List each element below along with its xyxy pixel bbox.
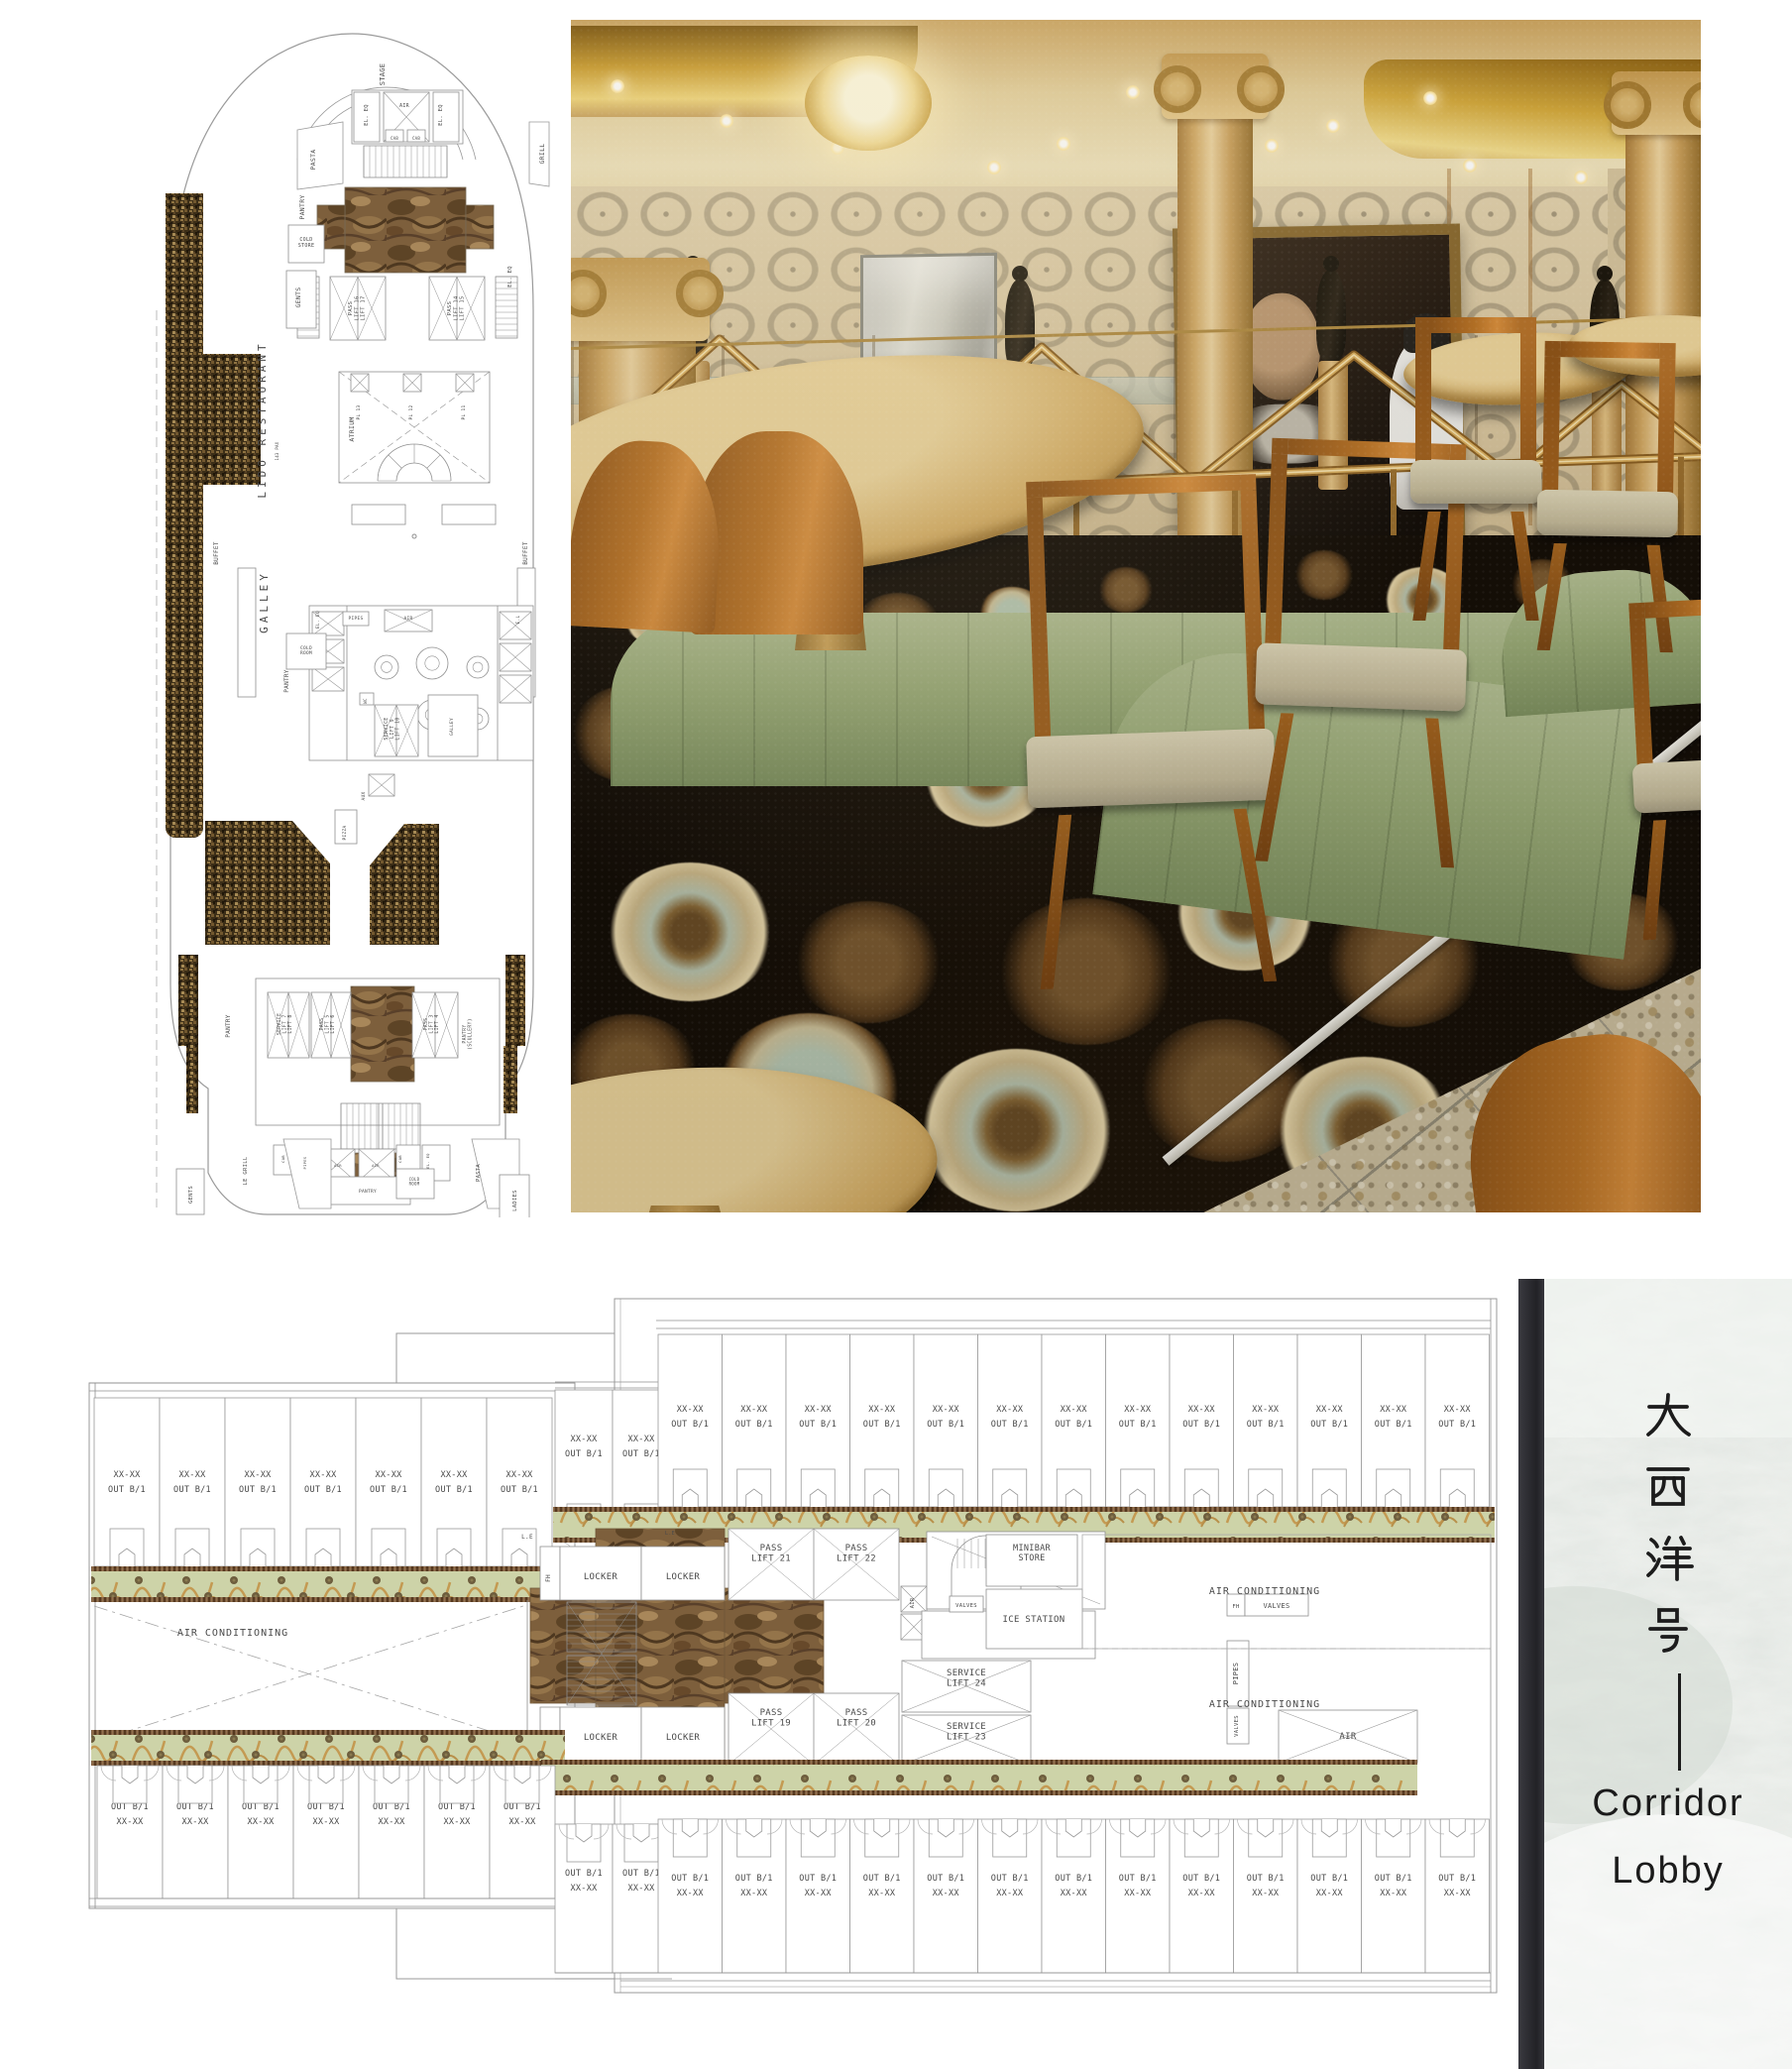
svg-text:XX-XX: XX-XX	[1061, 1889, 1088, 1898]
chair-seat-cushion	[1631, 756, 1701, 813]
svg-text:XX-XX: XX-XX	[508, 1817, 536, 1827]
corridor-plan-drawing: XX-XXOUT B/1XX-XXOUT B/1XX-XXOUT B/1XX-X…	[89, 1299, 1497, 1993]
wooden-chair	[1456, 1022, 1701, 1212]
svg-text:XX-XX: XX-XX	[933, 1889, 960, 1898]
svg-text:OUT B/1: OUT B/1	[370, 1485, 407, 1495]
svg-text:VALVES: VALVES	[1234, 1715, 1240, 1737]
svg-text:XX-XX: XX-XX	[1380, 1889, 1407, 1898]
svg-text:PIZZA: PIZZA	[342, 825, 348, 840]
svg-text:EL. EQ: EL. EQ	[364, 104, 370, 126]
svg-text:GENTS: GENTS	[294, 287, 302, 307]
chair-leg	[1643, 820, 1667, 940]
svg-text:LIDO RESTAURANT: LIDO RESTAURANT	[256, 340, 269, 498]
svg-text:GALLEY: GALLEY	[449, 718, 455, 736]
svg-text:OUT B/1: OUT B/1	[1375, 1874, 1412, 1884]
svg-text:CAB: CAB	[412, 136, 420, 141]
svg-text:OUT B/1: OUT B/1	[435, 1485, 473, 1495]
svg-text:XX-XX: XX-XX	[677, 1889, 705, 1898]
svg-text:XX-XX: XX-XX	[181, 1817, 209, 1827]
svg-text:XX-XX: XX-XX	[375, 1470, 402, 1480]
svg-text:OUT B/1: OUT B/1	[307, 1802, 345, 1812]
svg-text:XX-XX: XX-XX	[1316, 1889, 1344, 1898]
chair-leg	[1412, 512, 1440, 621]
svg-text:FH: FH	[545, 1574, 552, 1582]
svg-text:XX-XX: XX-XX	[505, 1470, 533, 1480]
divider-bar	[1518, 1279, 1544, 2069]
svg-text:EL. EQ: EL. EQ	[507, 266, 513, 287]
svg-text:XX-XX: XX-XX	[627, 1435, 655, 1444]
svg-text:OUT B/1: OUT B/1	[735, 1874, 773, 1884]
svg-text:CAB: CAB	[280, 1155, 285, 1163]
svg-text:PASTA: PASTA	[309, 149, 317, 170]
svg-text:OUT B/1: OUT B/1	[111, 1802, 149, 1812]
svg-text:OUT B/1: OUT B/1	[1438, 1420, 1476, 1430]
svg-text:E.L: E.L	[515, 615, 521, 624]
chair-back	[1628, 597, 1701, 772]
svg-text:OUT B/1: OUT B/1	[927, 1874, 964, 1884]
svg-text:OUT B/1: OUT B/1	[1247, 1874, 1285, 1884]
svg-text:143 PAX: 143 PAX	[275, 441, 280, 460]
svg-text:AIR: AIR	[910, 1597, 916, 1608]
svg-text:OUT B/1: OUT B/1	[799, 1420, 837, 1430]
svg-text:CAB: CAB	[397, 1155, 402, 1163]
svg-text:PANTRY: PANTRY	[298, 194, 306, 219]
svg-text:OUT B/1: OUT B/1	[1310, 1874, 1348, 1884]
svg-text:XX-XX: XX-XX	[740, 1405, 768, 1415]
chair-seat-cushion	[1255, 642, 1467, 711]
svg-text:XX-XX: XX-XX	[996, 1889, 1024, 1898]
svg-text:SERVICELIFT 7LIFT 8: SERVICELIFT 7LIFT 8	[277, 1013, 293, 1035]
svg-text:XX-XX: XX-XX	[868, 1889, 896, 1898]
svg-text:OUT B/1: OUT B/1	[304, 1485, 342, 1495]
carpet-circle	[606, 862, 774, 1000]
presentation-board: STAGEEL. EQEL. EQAIRCABCABPASTAPANTRYCOL…	[0, 0, 1792, 2069]
svg-text:LOCKER: LOCKER	[584, 1572, 618, 1582]
svg-text:XX-XX: XX-XX	[1444, 1889, 1472, 1898]
svg-text:PL 11: PL 11	[461, 404, 467, 419]
svg-text:XX-XX: XX-XX	[805, 1889, 833, 1898]
svg-text:STAGE: STAGE	[379, 63, 387, 86]
table-pedestal	[640, 1206, 729, 1212]
deck-plan-lido-restaurant: STAGEEL. EQEL. EQAIRCABCABPASTAPANTRYCOL…	[149, 13, 555, 1217]
restaurant-photo	[571, 20, 1701, 1212]
svg-text:OUT B/1: OUT B/1	[1119, 1420, 1157, 1430]
svg-text:PANTRY: PANTRY	[225, 1014, 232, 1038]
svg-text:XX-XX: XX-XX	[440, 1470, 468, 1480]
title-chinese	[1636, 1382, 1700, 1667]
svg-text:PL 12: PL 12	[408, 404, 414, 419]
svg-text:XX-XX: XX-XX	[113, 1470, 141, 1480]
deck-plan-corridor: XX-XXOUT B/1XX-XXOUT B/1XX-XXOUT B/1XX-X…	[79, 1291, 1507, 2003]
svg-text:OUT B/1: OUT B/1	[173, 1485, 211, 1495]
svg-text:OUT B/1: OUT B/1	[1247, 1420, 1285, 1430]
svg-text:AIR: AIR	[399, 103, 410, 109]
svg-text:XX-XX: XX-XX	[116, 1817, 144, 1827]
svg-text:SERVICELIFT 23: SERVICELIFT 23	[947, 1722, 986, 1742]
chair-back	[1026, 474, 1265, 745]
svg-text:OUT B/1: OUT B/1	[1375, 1420, 1412, 1430]
svg-text:XX-XX: XX-XX	[178, 1470, 206, 1480]
svg-text:OUT B/1: OUT B/1	[991, 1874, 1029, 1884]
wooden-chair	[1026, 474, 1274, 989]
svg-text:PANTRY: PANTRY	[359, 1189, 377, 1195]
svg-text:XX-XX: XX-XX	[996, 1405, 1024, 1415]
svg-text:OUT B/1: OUT B/1	[1119, 1874, 1157, 1884]
svg-text:XX-XX: XX-XX	[1124, 1889, 1152, 1898]
chair-leg	[1041, 815, 1071, 989]
chair-leg	[1511, 512, 1538, 621]
svg-text:XX-XX: XX-XX	[1061, 1405, 1088, 1415]
svg-text:OUT B/1: OUT B/1	[504, 1802, 541, 1812]
svg-text:AIR: AIR	[372, 1163, 380, 1168]
svg-text:PIPES: PIPES	[302, 1156, 307, 1169]
svg-text:SERVICELIFT 9LIFT 10: SERVICELIFT 9LIFT 10	[384, 717, 401, 740]
caption-corridor: Corridor	[1544, 1782, 1792, 1825]
svg-text:OUT B/1: OUT B/1	[622, 1449, 660, 1459]
svg-text:LOCKER: LOCKER	[666, 1733, 701, 1743]
svg-text:XX-XX: XX-XX	[1188, 1405, 1216, 1415]
cn-char	[1648, 1538, 1692, 1579]
svg-text:VALVES: VALVES	[1263, 1602, 1289, 1610]
svg-text:OUT B/1: OUT B/1	[373, 1802, 410, 1812]
chair-leg	[1537, 543, 1567, 650]
wooden-chair	[571, 437, 725, 633]
svg-text:OUT B/1: OUT B/1	[1182, 1874, 1220, 1884]
svg-text:COLDROOM: COLDROOM	[409, 1177, 420, 1187]
svg-text:XX-XX: XX-XX	[1124, 1405, 1152, 1415]
svg-text:LOCKER: LOCKER	[584, 1733, 618, 1743]
svg-text:OUT B/1: OUT B/1	[438, 1802, 476, 1812]
svg-text:AIR: AIR	[334, 1163, 342, 1168]
svg-text:OUT B/1: OUT B/1	[863, 1420, 901, 1430]
svg-text:OUT B/1: OUT B/1	[176, 1802, 214, 1812]
svg-text:LOCKER: LOCKER	[666, 1572, 701, 1582]
cn-char	[1648, 1469, 1688, 1504]
svg-text:AIR CONDITIONING: AIR CONDITIONING	[1209, 1586, 1320, 1597]
svg-text:XX-XX: XX-XX	[868, 1405, 896, 1415]
svg-text:OUT B/1: OUT B/1	[863, 1874, 901, 1884]
svg-text:OUT B/1: OUT B/1	[501, 1485, 538, 1495]
svg-text:PASTA: PASTA	[476, 1164, 482, 1182]
svg-text:OUT B/1: OUT B/1	[671, 1420, 709, 1430]
svg-text:PIPES: PIPES	[348, 616, 363, 622]
carpet-circle	[918, 1049, 1116, 1211]
svg-text:AIR CONDITIONING: AIR CONDITIONING	[1209, 1699, 1320, 1710]
svg-text:OUT B/1: OUT B/1	[565, 1449, 603, 1459]
svg-text:BUFFET: BUFFET	[522, 541, 529, 565]
svg-text:XX-XX: XX-XX	[309, 1470, 337, 1480]
svg-text:XX-XX: XX-XX	[312, 1817, 340, 1827]
svg-text:LE GRILL: LE GRILL	[243, 1156, 249, 1185]
svg-text:XX-XX: XX-XX	[570, 1435, 598, 1444]
svg-text:OUT B/1: OUT B/1	[622, 1869, 660, 1879]
svg-text:XX-XX: XX-XX	[1252, 1405, 1280, 1415]
svg-text:L.E: L.E	[521, 1534, 533, 1541]
chair-seat-cushion	[1536, 490, 1678, 537]
chair-seat-cushion	[1410, 460, 1541, 504]
svg-text:AUX: AUX	[361, 791, 367, 800]
vertical-dash	[1678, 1673, 1681, 1771]
cn-char	[1650, 1610, 1686, 1651]
wooden-chair	[1415, 317, 1536, 621]
svg-text:OUT B/1: OUT B/1	[1055, 1874, 1092, 1884]
svg-text:OUT B/1: OUT B/1	[991, 1420, 1029, 1430]
svg-text:XX-XX: XX-XX	[1444, 1405, 1472, 1415]
chair-back	[571, 437, 725, 633]
svg-text:FH: FH	[1232, 1604, 1239, 1610]
svg-text:OUT B/1: OUT B/1	[1182, 1420, 1220, 1430]
svg-text:XX-XX: XX-XX	[740, 1889, 768, 1898]
caption-lobby: Lobby	[1544, 1850, 1792, 1893]
svg-text:XX-XX: XX-XX	[244, 1470, 272, 1480]
svg-text:EL. EQ: EL. EQ	[315, 611, 321, 629]
svg-text:COLDROOM: COLDROOM	[300, 645, 312, 656]
svg-text:XX-XX: XX-XX	[570, 1884, 598, 1894]
svg-text:ICE STATION: ICE STATION	[1003, 1615, 1065, 1625]
svg-text:XX-XX: XX-XX	[1380, 1405, 1407, 1415]
svg-text:OUT B/1: OUT B/1	[927, 1420, 964, 1430]
svg-text:XX-XX: XX-XX	[1252, 1889, 1280, 1898]
svg-text:AIR: AIR	[1339, 1732, 1356, 1742]
svg-text:OUT B/1: OUT B/1	[671, 1874, 709, 1884]
svg-text:XX-XX: XX-XX	[1188, 1889, 1216, 1898]
svg-text:ATRIUM: ATRIUM	[348, 416, 356, 441]
svg-text:OUT B/1: OUT B/1	[108, 1485, 146, 1495]
svg-text:SERVICELIFT 24: SERVICELIFT 24	[947, 1668, 986, 1688]
svg-text:LADIES: LADIES	[512, 1190, 518, 1211]
svg-text:AIR CONDITIONING: AIR CONDITIONING	[177, 1628, 288, 1639]
svg-text:OUT B/1: OUT B/1	[242, 1802, 280, 1812]
chair-back	[1456, 1022, 1701, 1212]
svg-text:XX-XX: XX-XX	[247, 1817, 275, 1827]
deck-plan-drawing: STAGEEL. EQEL. EQAIRCABCABPASTAPANTRYCOL…	[157, 34, 549, 1217]
svg-text:OUT B/1: OUT B/1	[1310, 1420, 1348, 1430]
svg-text:OUT B/1: OUT B/1	[1055, 1420, 1092, 1430]
svg-text:GENTS: GENTS	[188, 1186, 194, 1204]
svg-text:OUT B/1: OUT B/1	[565, 1869, 603, 1879]
cn-char	[1648, 1395, 1689, 1435]
svg-text:XX-XX: XX-XX	[378, 1817, 405, 1827]
svg-text:XX-XX: XX-XX	[1316, 1405, 1344, 1415]
svg-text:XX-XX: XX-XX	[627, 1884, 655, 1894]
chair-back	[1542, 341, 1676, 500]
svg-text:AIR: AIR	[403, 616, 412, 622]
svg-text:VALVES: VALVES	[955, 1603, 977, 1609]
chair-seat-cushion	[1026, 729, 1277, 809]
svg-text:CAB: CAB	[391, 136, 398, 141]
svg-text:EL. EQ: EL. EQ	[438, 104, 444, 126]
svg-text:GALLEY: GALLEY	[258, 570, 271, 633]
chair-back	[1415, 317, 1536, 468]
svg-text:PANTRY: PANTRY	[283, 669, 290, 693]
svg-text:XX-XX: XX-XX	[677, 1405, 705, 1415]
svg-text:PL 13: PL 13	[356, 404, 362, 419]
carpet-circle	[794, 901, 943, 1023]
chair-leg	[1425, 718, 1454, 867]
svg-text:COLDSTORE: COLDSTORE	[298, 237, 315, 249]
svg-text:XX-XX: XX-XX	[443, 1817, 471, 1827]
svg-text:OUT B/1: OUT B/1	[239, 1485, 277, 1495]
svg-text:L.E: L.E	[665, 1531, 675, 1537]
svg-text:GRILL: GRILL	[538, 143, 546, 164]
caption-panel: Corridor Lobby	[1518, 1279, 1792, 2069]
svg-text:WC: WC	[363, 698, 368, 704]
svg-text:OUT B/1: OUT B/1	[735, 1420, 773, 1430]
svg-text:XX-XX: XX-XX	[805, 1405, 833, 1415]
svg-text:OUT B/1: OUT B/1	[799, 1874, 837, 1884]
svg-text:EL. EQ: EL. EQ	[425, 1153, 430, 1169]
svg-text:PIPES: PIPES	[1232, 1663, 1240, 1685]
svg-text:OUT B/1: OUT B/1	[1438, 1874, 1476, 1884]
svg-text:XX-XX: XX-XX	[933, 1405, 960, 1415]
svg-text:BUFFET: BUFFET	[213, 541, 220, 565]
